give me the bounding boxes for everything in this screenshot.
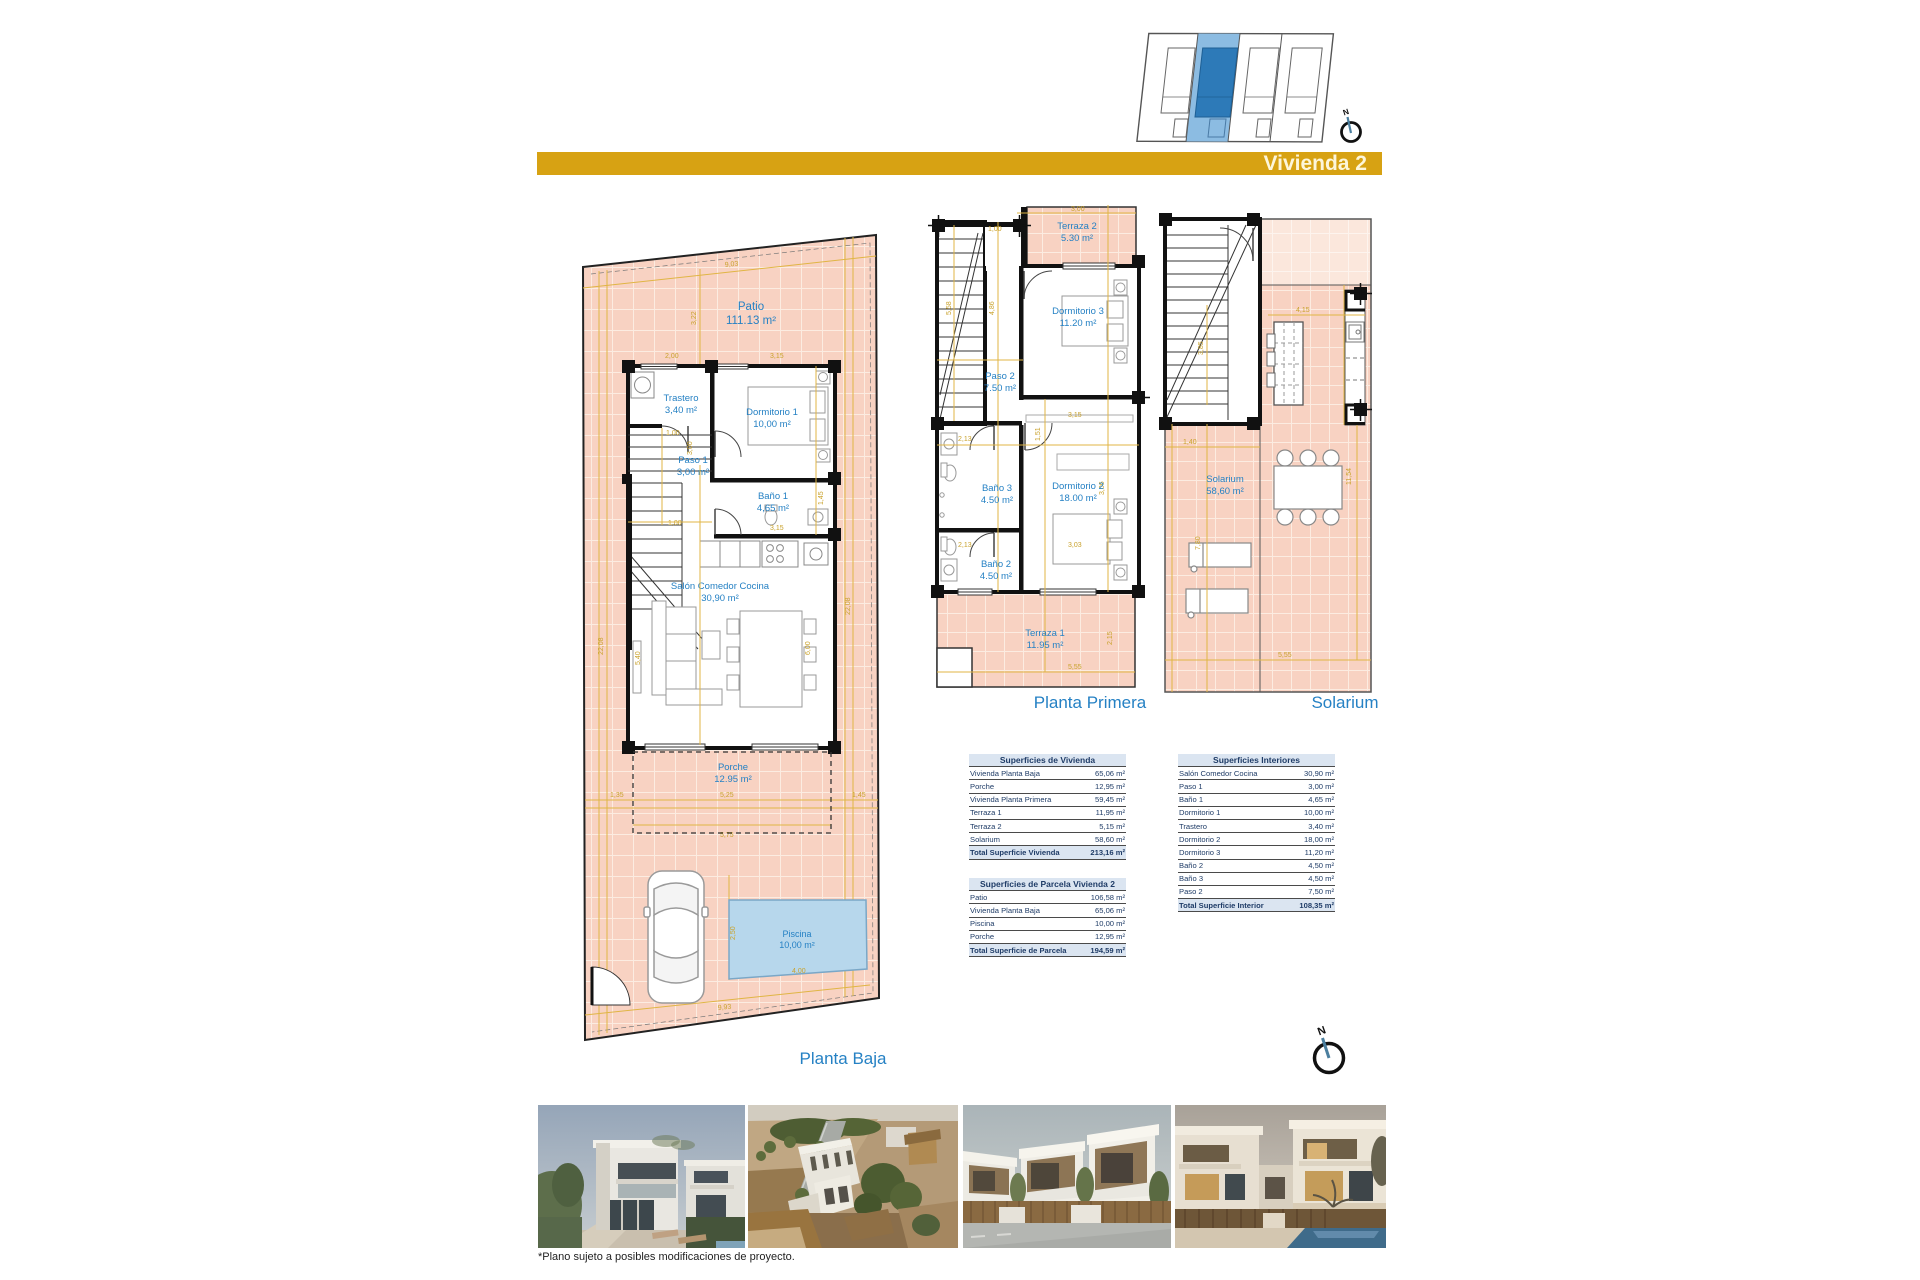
- svg-text:3,00: 3,00: [687, 441, 694, 455]
- svg-text:111.13 m²: 111.13 m²: [726, 315, 776, 327]
- svg-text:Baño 1: Baño 1: [758, 491, 788, 502]
- svg-text:1,00: 1,00: [668, 520, 682, 527]
- svg-text:3,15: 3,15: [770, 353, 784, 360]
- svg-text:Dormitorio 2: Dormitorio 2: [1052, 481, 1104, 492]
- svg-text:1,00: 1,00: [666, 430, 680, 437]
- svg-text:10,00 m²: 10,00 m²: [779, 940, 815, 950]
- svg-text:1,45: 1,45: [852, 792, 866, 799]
- svg-text:5,40: 5,40: [635, 651, 642, 665]
- svg-text:Baño 3: Baño 3: [982, 483, 1012, 494]
- svg-text:1,40: 1,40: [1183, 439, 1197, 446]
- svg-text:2,50: 2,50: [730, 926, 737, 940]
- svg-text:7,80: 7,80: [1195, 536, 1202, 550]
- svg-text:Trastero: Trastero: [663, 393, 698, 404]
- svg-text:4.50 m²: 4.50 m²: [981, 495, 1013, 506]
- svg-text:Dormitorio 3: Dormitorio 3: [1052, 306, 1104, 317]
- svg-text:4.50 m²: 4.50 m²: [980, 571, 1012, 582]
- svg-text:3,00: 3,00: [1071, 206, 1085, 213]
- svg-text:5,55: 5,55: [1278, 652, 1292, 659]
- svg-text:Porche: Porche: [718, 762, 748, 773]
- svg-text:2,15: 2,15: [1107, 631, 1114, 645]
- svg-text:18.00 m²: 18.00 m²: [1059, 493, 1097, 504]
- svg-text:30,90 m²: 30,90 m²: [701, 593, 739, 604]
- svg-text:2,13: 2,13: [958, 542, 972, 549]
- svg-text:11,54: 11,54: [1346, 468, 1353, 485]
- svg-text:2,13: 2,13: [958, 436, 972, 443]
- svg-text:7.50 m²: 7.50 m²: [984, 383, 1016, 394]
- svg-text:Dormitorio 1: Dormitorio 1: [746, 407, 798, 418]
- svg-text:4,86: 4,86: [989, 301, 996, 315]
- svg-text:Patio: Patio: [738, 301, 764, 313]
- svg-text:1,45: 1,45: [818, 491, 825, 505]
- svg-text:3,40 m²: 3,40 m²: [665, 405, 697, 416]
- svg-text:9,03: 9,03: [724, 261, 738, 269]
- svg-text:Paso 2: Paso 2: [985, 371, 1015, 382]
- svg-text:1,51: 1,51: [1035, 427, 1042, 441]
- svg-text:4,15: 4,15: [1296, 307, 1310, 314]
- svg-text:11.20 m²: 11.20 m²: [1060, 318, 1097, 329]
- svg-text:5,25: 5,25: [720, 792, 734, 799]
- svg-text:3,85: 3,85: [1198, 341, 1205, 355]
- svg-text:6,00: 6,00: [805, 641, 812, 655]
- svg-text:Paso 1: Paso 1: [678, 455, 708, 466]
- svg-text:1,35: 1,35: [610, 792, 624, 799]
- svg-text:58,60 m²: 58,60 m²: [1206, 486, 1244, 497]
- svg-text:9,93: 9,93: [717, 1004, 731, 1012]
- svg-text:3,03: 3,03: [1068, 542, 1082, 549]
- svg-text:2,00: 2,00: [665, 353, 679, 360]
- svg-text:3,22: 3,22: [691, 311, 698, 325]
- svg-text:1,00: 1,00: [988, 226, 1002, 233]
- svg-text:3,15: 3,15: [1068, 412, 1082, 419]
- svg-text:5,55: 5,55: [1068, 664, 1082, 671]
- svg-text:11.95 m²: 11.95 m²: [1027, 640, 1064, 651]
- svg-text:N: N: [1316, 1024, 1328, 1038]
- svg-text:Piscina: Piscina: [782, 929, 811, 939]
- svg-text:4,00: 4,00: [792, 968, 806, 975]
- svg-text:Planta Primera: Planta Primera: [1034, 693, 1147, 712]
- svg-text:Terraza 1: Terraza 1: [1025, 628, 1065, 639]
- svg-text:N: N: [1342, 107, 1350, 117]
- svg-text:5.30 m²: 5.30 m²: [1061, 233, 1093, 244]
- svg-text:22,08: 22,08: [598, 637, 605, 655]
- svg-text:Baño 2: Baño 2: [981, 559, 1011, 570]
- svg-text:3,00 m²: 3,00 m²: [677, 467, 709, 478]
- svg-text:Salón Comedor Cocina: Salón Comedor Cocina: [671, 581, 770, 592]
- svg-text:3,15: 3,15: [770, 525, 784, 532]
- svg-text:22,08: 22,08: [845, 597, 852, 615]
- svg-text:Terraza 2: Terraza 2: [1057, 221, 1097, 232]
- svg-text:5,58: 5,58: [946, 301, 953, 315]
- svg-text:Planta Baja: Planta Baja: [800, 1049, 887, 1068]
- svg-text:Solarium: Solarium: [1311, 693, 1378, 712]
- svg-text:12.95 m²: 12.95 m²: [714, 774, 752, 785]
- svg-text:Solarium: Solarium: [1206, 474, 1244, 485]
- svg-text:4,65 m²: 4,65 m²: [757, 503, 789, 514]
- svg-text:10,00 m²: 10,00 m²: [753, 419, 791, 430]
